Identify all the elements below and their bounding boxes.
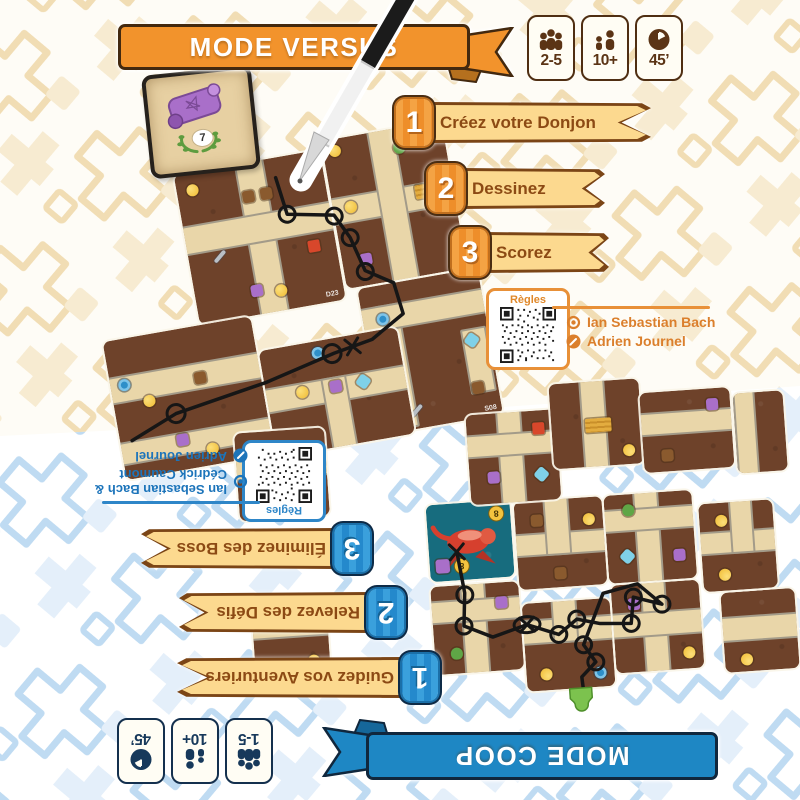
dungeon-tile xyxy=(430,581,524,675)
scroll-icon xyxy=(706,398,719,411)
dungeon-tile xyxy=(465,409,561,505)
coop-section: 8 8 xyxy=(0,0,800,800)
stairs-icon xyxy=(585,417,612,433)
coin-icon xyxy=(741,653,754,666)
step-label: Guidez vos Aventuriers xyxy=(177,657,409,698)
players-icon xyxy=(234,748,264,773)
dungeon-tile xyxy=(548,378,644,469)
scroll-icon xyxy=(495,596,508,609)
artist-credit: Adrien Journel xyxy=(62,448,248,463)
players-count: 1-5 xyxy=(239,730,260,748)
coop-info-badges: 1-5 10+ 45’ xyxy=(117,718,273,784)
coop-banner-title: MODE COOP xyxy=(366,732,718,780)
coop-step-3: 3 Éliminez des Boss xyxy=(141,525,370,572)
scroll-icon xyxy=(435,559,450,574)
artist-name: Adrien Journel xyxy=(135,448,227,463)
coin-icon xyxy=(719,568,732,581)
dungeon-tile xyxy=(603,490,697,584)
door-icon xyxy=(532,422,545,435)
coin-icon xyxy=(715,514,728,527)
pool-icon xyxy=(594,666,607,679)
coop-step-2: 2 Relevez des Défis xyxy=(179,589,404,636)
scroll-icon xyxy=(627,598,640,611)
adventurer-meeple xyxy=(568,684,594,714)
step-number: 2 xyxy=(368,589,404,636)
rules-sheet: D23 D07 S08 xyxy=(0,0,800,800)
age-badge: 10+ xyxy=(171,718,219,784)
boss-tile: 8 8 xyxy=(425,500,514,583)
gem-icon xyxy=(533,466,550,483)
step-number: 3 xyxy=(334,525,370,572)
bush-icon xyxy=(450,647,463,660)
coin-icon xyxy=(623,444,636,457)
scroll-icon xyxy=(673,548,686,561)
dungeon-tile xyxy=(513,496,607,590)
duration-value: 45’ xyxy=(131,730,151,748)
barrel-icon xyxy=(661,449,674,462)
timer-icon xyxy=(128,748,154,773)
age-icon xyxy=(181,748,209,773)
coin-icon xyxy=(683,646,696,659)
players-badge: 1-5 xyxy=(225,718,273,784)
qr-label: Règles xyxy=(266,503,302,517)
scroll-icon xyxy=(487,471,500,484)
coop-step-1: 1 Guidez vos Aventuriers xyxy=(177,654,438,701)
barrel-icon xyxy=(530,514,543,527)
coin-icon xyxy=(582,513,595,526)
author-name: Ian Sebastian Bach & Cédrick Caumont xyxy=(62,466,227,496)
author-credit: Ian Sebastian Bach & Cédrick Caumont xyxy=(62,466,248,496)
dungeon-tile xyxy=(732,390,787,473)
dungeon-tile xyxy=(698,499,778,592)
coin-icon xyxy=(540,668,553,681)
timer-badge: 45’ xyxy=(117,718,165,784)
coop-banner: MODE COOP xyxy=(366,732,718,780)
coop-credits: Ian Sebastian Bach & Cédrick Caumont Adr… xyxy=(62,448,248,496)
step-label: Relevez des Défis xyxy=(179,592,375,633)
step-number: 1 xyxy=(402,654,438,701)
target-icon xyxy=(233,474,248,489)
dungeon-tile xyxy=(522,598,616,692)
dungeon-tile xyxy=(720,588,799,673)
barrel-icon xyxy=(554,567,567,580)
credits-divider xyxy=(102,502,260,505)
dungeon-tile xyxy=(639,387,734,473)
qr-code xyxy=(256,447,312,503)
step-label: Éliminez des Boss xyxy=(141,528,341,569)
pen-icon xyxy=(233,448,248,463)
gem-icon xyxy=(619,548,636,565)
rules-qr-box: Règles xyxy=(242,440,326,522)
dungeon-tile xyxy=(611,580,705,674)
age-value: 10+ xyxy=(183,730,208,748)
